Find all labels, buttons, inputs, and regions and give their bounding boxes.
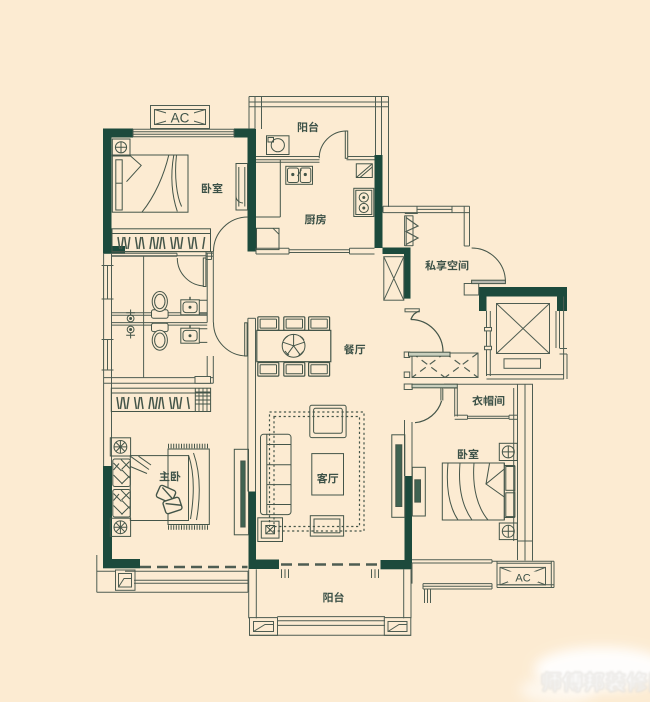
svg-text:AC: AC <box>171 111 190 126</box>
svg-text:AC: AC <box>515 573 530 585</box>
